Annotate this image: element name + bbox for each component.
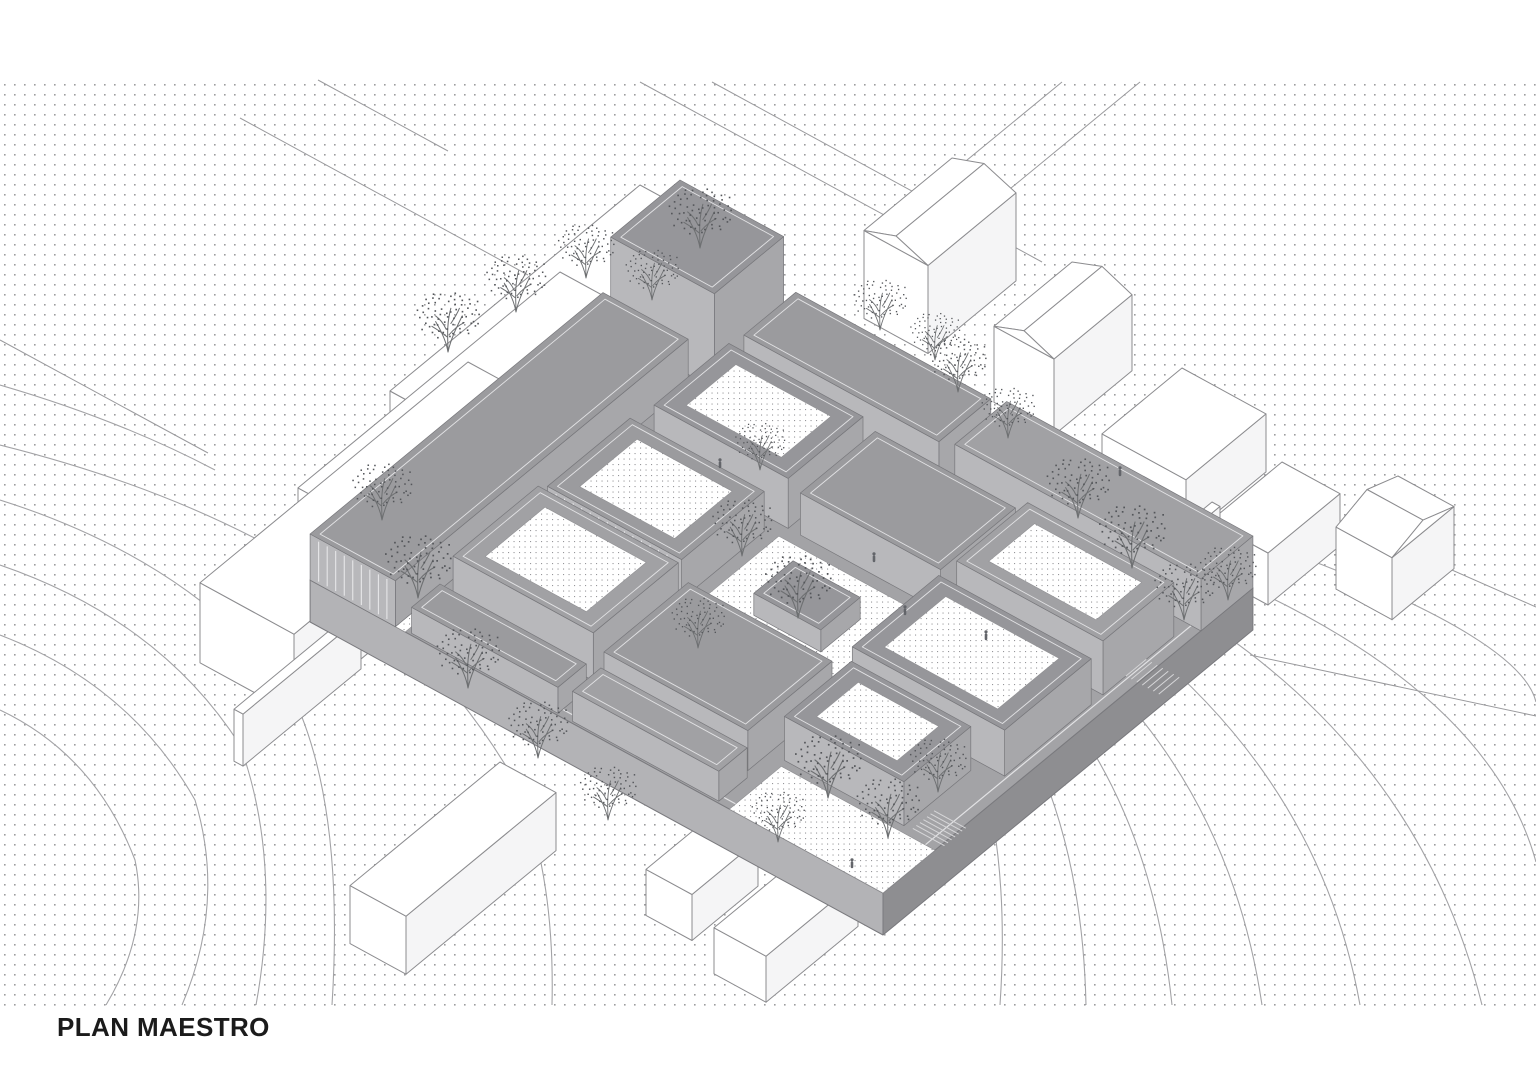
figure [903, 605, 906, 615]
figure [850, 858, 853, 868]
figure [718, 458, 721, 468]
drawing-title: PLAN MAESTRO [57, 1012, 270, 1043]
figure [984, 630, 987, 640]
figure [1118, 466, 1121, 476]
master-plan-drawing [0, 0, 1536, 1086]
figure [872, 552, 875, 562]
drawing-sheet: PLAN MAESTRO [0, 0, 1536, 1086]
